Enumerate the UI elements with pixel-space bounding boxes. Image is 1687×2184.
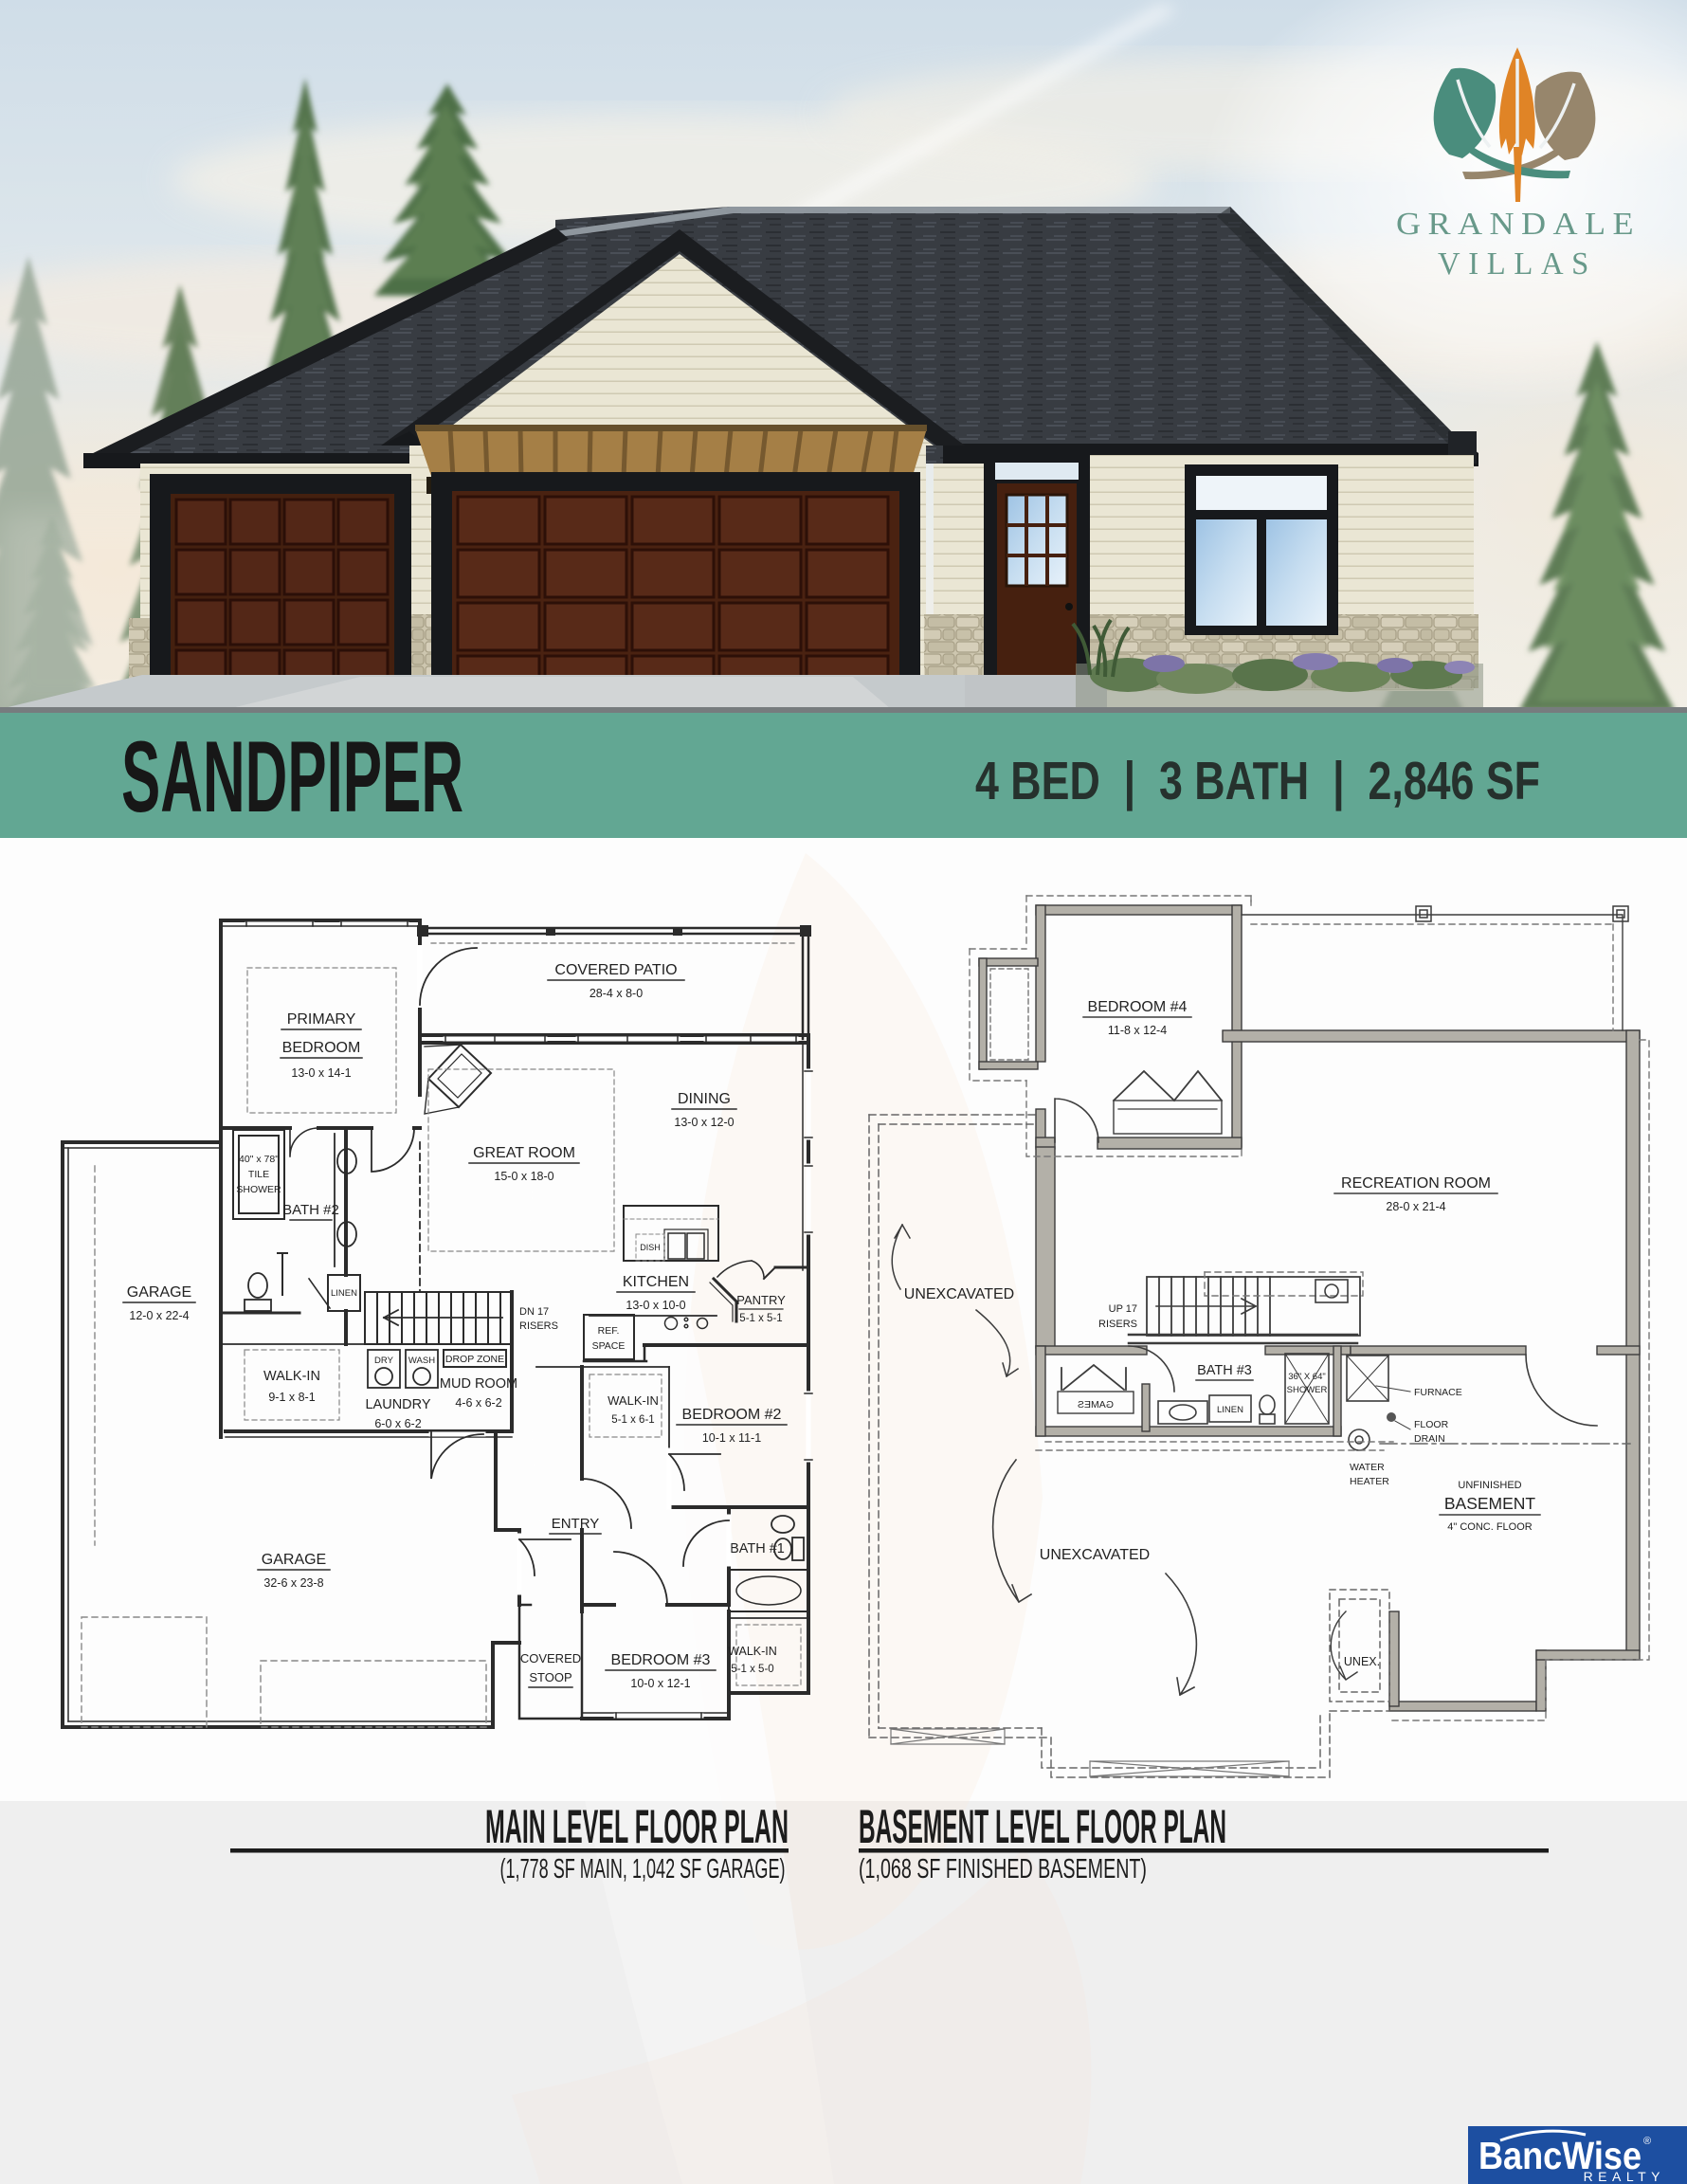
svg-text:PANTRY: PANTRY	[736, 1293, 786, 1307]
svg-text:ENTRY: ENTRY	[552, 1516, 600, 1532]
svg-text:DISH: DISH	[640, 1243, 661, 1252]
svg-text:BEDROOM: BEDROOM	[282, 1040, 361, 1056]
svg-text:13-0 x 14-1: 13-0 x 14-1	[291, 1066, 351, 1080]
svg-text:WASH: WASH	[408, 1356, 435, 1366]
svg-text:SANDPIPER: SANDPIPER	[121, 719, 463, 833]
svg-text:TILE: TILE	[248, 1169, 269, 1180]
svg-text:SPACE: SPACE	[592, 1340, 626, 1352]
svg-text:BATH #3: BATH #3	[1197, 1363, 1252, 1378]
svg-text:RISERS: RISERS	[519, 1320, 558, 1332]
svg-text:12-0 x 22-4: 12-0 x 22-4	[129, 1309, 189, 1322]
svg-text:BATH #2: BATH #2	[282, 1202, 339, 1218]
svg-text:HEATER: HEATER	[1350, 1476, 1389, 1487]
svg-text:PRIMARY: PRIMARY	[287, 1011, 356, 1028]
svg-text:RECREATION ROOM: RECREATION ROOM	[1341, 1175, 1491, 1192]
svg-text:9-1 x 8-1: 9-1 x 8-1	[268, 1391, 315, 1404]
svg-text:GARAGE: GARAGE	[127, 1284, 191, 1301]
svg-text:DN 17: DN 17	[519, 1306, 549, 1318]
svg-text:MAIN LEVEL FLOOR PLAN: MAIN LEVEL FLOOR PLAN	[485, 1800, 789, 1853]
svg-text:UNFINISHED: UNFINISHED	[1458, 1480, 1521, 1491]
svg-text:RISERS: RISERS	[1098, 1319, 1137, 1330]
svg-text:COVERED PATIO: COVERED PATIO	[554, 962, 677, 978]
svg-text:UNEXCAVATED: UNEXCAVATED	[904, 1286, 1014, 1302]
svg-text:®: ®	[1643, 2136, 1651, 2147]
svg-text:UP 17: UP 17	[1109, 1303, 1137, 1315]
svg-text:5-1 x 5-1: 5-1 x 5-1	[739, 1313, 782, 1324]
svg-text:BASEMENT: BASEMENT	[1444, 1494, 1536, 1513]
svg-text:5-1 x 6-1: 5-1 x 6-1	[611, 1414, 654, 1426]
svg-text:STOOP: STOOP	[529, 1670, 571, 1684]
svg-text:LAUNDRY: LAUNDRY	[365, 1397, 430, 1412]
svg-text:11-8 x 12-4: 11-8 x 12-4	[1108, 1024, 1167, 1037]
svg-text:GREAT ROOM: GREAT ROOM	[473, 1145, 575, 1161]
svg-text:32-6 x 23-8: 32-6 x 23-8	[263, 1576, 323, 1590]
svg-text:28-0 x 21-4: 28-0 x 21-4	[1386, 1200, 1445, 1213]
svg-text:LINEN: LINEN	[1217, 1405, 1243, 1415]
svg-text:WALK-IN: WALK-IN	[608, 1393, 659, 1408]
svg-text:COVERED: COVERED	[520, 1651, 581, 1665]
svg-text:4" CONC. FLOOR: 4" CONC. FLOOR	[1447, 1521, 1533, 1533]
svg-text:SHOWER: SHOWER	[236, 1184, 281, 1195]
svg-text:BEDROOM #3: BEDROOM #3	[611, 1652, 711, 1668]
svg-text:DINING: DINING	[678, 1091, 731, 1107]
svg-text:UNEX.: UNEX.	[1344, 1655, 1380, 1668]
svg-text:DRAIN: DRAIN	[1414, 1433, 1445, 1445]
svg-text:KITCHEN: KITCHEN	[623, 1274, 689, 1290]
svg-text:13-0 x 12-0: 13-0 x 12-0	[674, 1116, 734, 1129]
svg-text:10-1 x 11-1: 10-1 x 11-1	[702, 1431, 761, 1445]
svg-text:GRANDALE: GRANDALE	[1396, 207, 1641, 242]
svg-text:REF.: REF.	[598, 1325, 620, 1337]
svg-text:BEDROOM #4: BEDROOM #4	[1088, 999, 1188, 1015]
svg-text:DROP ZONE: DROP ZONE	[445, 1354, 504, 1365]
svg-text:BASEMENT LEVEL FLOOR PLAN: BASEMENT LEVEL FLOOR PLAN	[859, 1800, 1226, 1853]
svg-text:WALK-IN: WALK-IN	[728, 1645, 777, 1658]
svg-text:UNEXCAVATED: UNEXCAVATED	[1040, 1547, 1150, 1563]
svg-text:SHOWER: SHOWER	[1287, 1385, 1328, 1395]
svg-text:(1,778 SF MAIN, 1,042 SF GARAG: (1,778 SF MAIN, 1,042 SF GARAGE)	[500, 1854, 786, 1884]
svg-text:LINEN: LINEN	[331, 1288, 357, 1299]
svg-text:WATER: WATER	[1350, 1462, 1385, 1473]
svg-text:28-4 x 8-0: 28-4 x 8-0	[590, 987, 643, 1000]
svg-text:DRY: DRY	[374, 1356, 394, 1366]
svg-text:(1,068 SF FINISHED BASEMENT): (1,068 SF FINISHED BASEMENT)	[859, 1854, 1147, 1884]
svg-text:FLOOR: FLOOR	[1414, 1419, 1449, 1430]
svg-text:MUD ROOM: MUD ROOM	[440, 1376, 517, 1392]
svg-text:FURNACE: FURNACE	[1414, 1387, 1462, 1398]
svg-text:BEDROOM #2: BEDROOM #2	[682, 1407, 782, 1423]
svg-text:REALTY: REALTY	[1584, 2169, 1665, 2184]
svg-text:15-0 x 18-0: 15-0 x 18-0	[494, 1170, 553, 1183]
svg-text:4 BED | 3 BATH | 2,846 SF: 4 BED | 3 BATH | 2,846 SF	[975, 751, 1540, 811]
svg-text:6-0 x 6-2: 6-0 x 6-2	[374, 1417, 421, 1430]
svg-text:10-0 x 12-1: 10-0 x 12-1	[630, 1677, 690, 1690]
svg-text:36" X 64": 36" X 64"	[1288, 1372, 1326, 1382]
svg-text:4-6 x 6-2: 4-6 x 6-2	[455, 1396, 501, 1410]
svg-text:GAMES: GAMES	[1078, 1399, 1114, 1410]
svg-text:GARAGE: GARAGE	[262, 1552, 326, 1568]
svg-text:WALK-IN: WALK-IN	[263, 1369, 320, 1384]
svg-text:13-0 x 10-0: 13-0 x 10-0	[626, 1299, 685, 1312]
svg-text:VILLAS: VILLAS	[1438, 246, 1597, 282]
svg-text:5-1 x 5-0: 5-1 x 5-0	[731, 1664, 773, 1675]
svg-text:40" x 78": 40" x 78"	[239, 1154, 279, 1165]
